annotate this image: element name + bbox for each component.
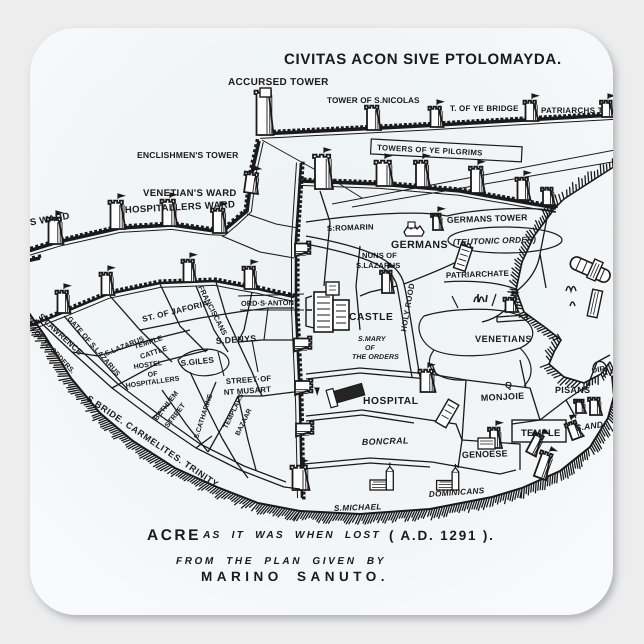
svg-text:GENOESE: GENOESE <box>462 448 508 460</box>
svg-text:GERMANS: GERMANS <box>391 239 448 251</box>
svg-text:FROM THE PLAN GIVEN BY: FROM THE PLAN GIVEN BY <box>176 556 386 567</box>
svg-text:TEMPLE: TEMPLE <box>521 427 561 438</box>
svg-text:OF: OF <box>365 345 376 352</box>
svg-text:ORD·S·ANTONY: ORD·S·ANTONY <box>241 298 299 308</box>
svg-text:S.MARY: S.MARY <box>358 336 387 343</box>
svg-text:Q: Q <box>505 380 512 390</box>
svg-text:S:ROMARIN: S:ROMARIN <box>327 222 374 233</box>
svg-text:PISANS: PISANS <box>555 385 590 395</box>
svg-text:HOSPITAL: HOSPITAL <box>363 396 419 407</box>
svg-text:( A.D. 1291 ).: ( A.D. 1291 ). <box>389 528 495 543</box>
svg-text:S.MICHAEL: S.MICHAEL <box>334 502 382 513</box>
svg-text:S.LAZARUS: S.LAZARUS <box>356 261 400 270</box>
svg-text:ENCLISHMEN'S TOWER: ENCLISHMEN'S TOWER <box>137 150 239 160</box>
svg-text:THE ORDERS: THE ORDERS <box>352 354 399 361</box>
svg-text:VENETIANS: VENETIANS <box>475 334 532 344</box>
svg-text:CASTLE: CASTLE <box>349 312 393 323</box>
svg-text:MARINO SANUTO.: MARINO SANUTO. <box>201 569 389 584</box>
svg-text:T. OF YE BRIDGE: T. OF YE BRIDGE <box>450 104 519 113</box>
svg-text:AS IT WAS WHEN LOST: AS IT WAS WHEN LOST <box>202 530 381 541</box>
svg-text:TOWER OF S.NICOLAS: TOWER OF S.NICOLAS <box>327 96 420 105</box>
svg-text:NUNS OF: NUNS OF <box>362 251 397 260</box>
svg-text:ACRE: ACRE <box>147 527 201 544</box>
svg-text:CIVITAS ACON SIVE PTOLOMAYDA.: CIVITAS ACON SIVE PTOLOMAYDA. <box>284 51 562 68</box>
svg-text:ACCURSED TOWER: ACCURSED TOWER <box>228 77 329 88</box>
svg-text:BONCRAL: BONCRAL <box>362 435 409 447</box>
svg-text:VENETIAN'S WARD: VENETIAN'S WARD <box>143 188 237 199</box>
